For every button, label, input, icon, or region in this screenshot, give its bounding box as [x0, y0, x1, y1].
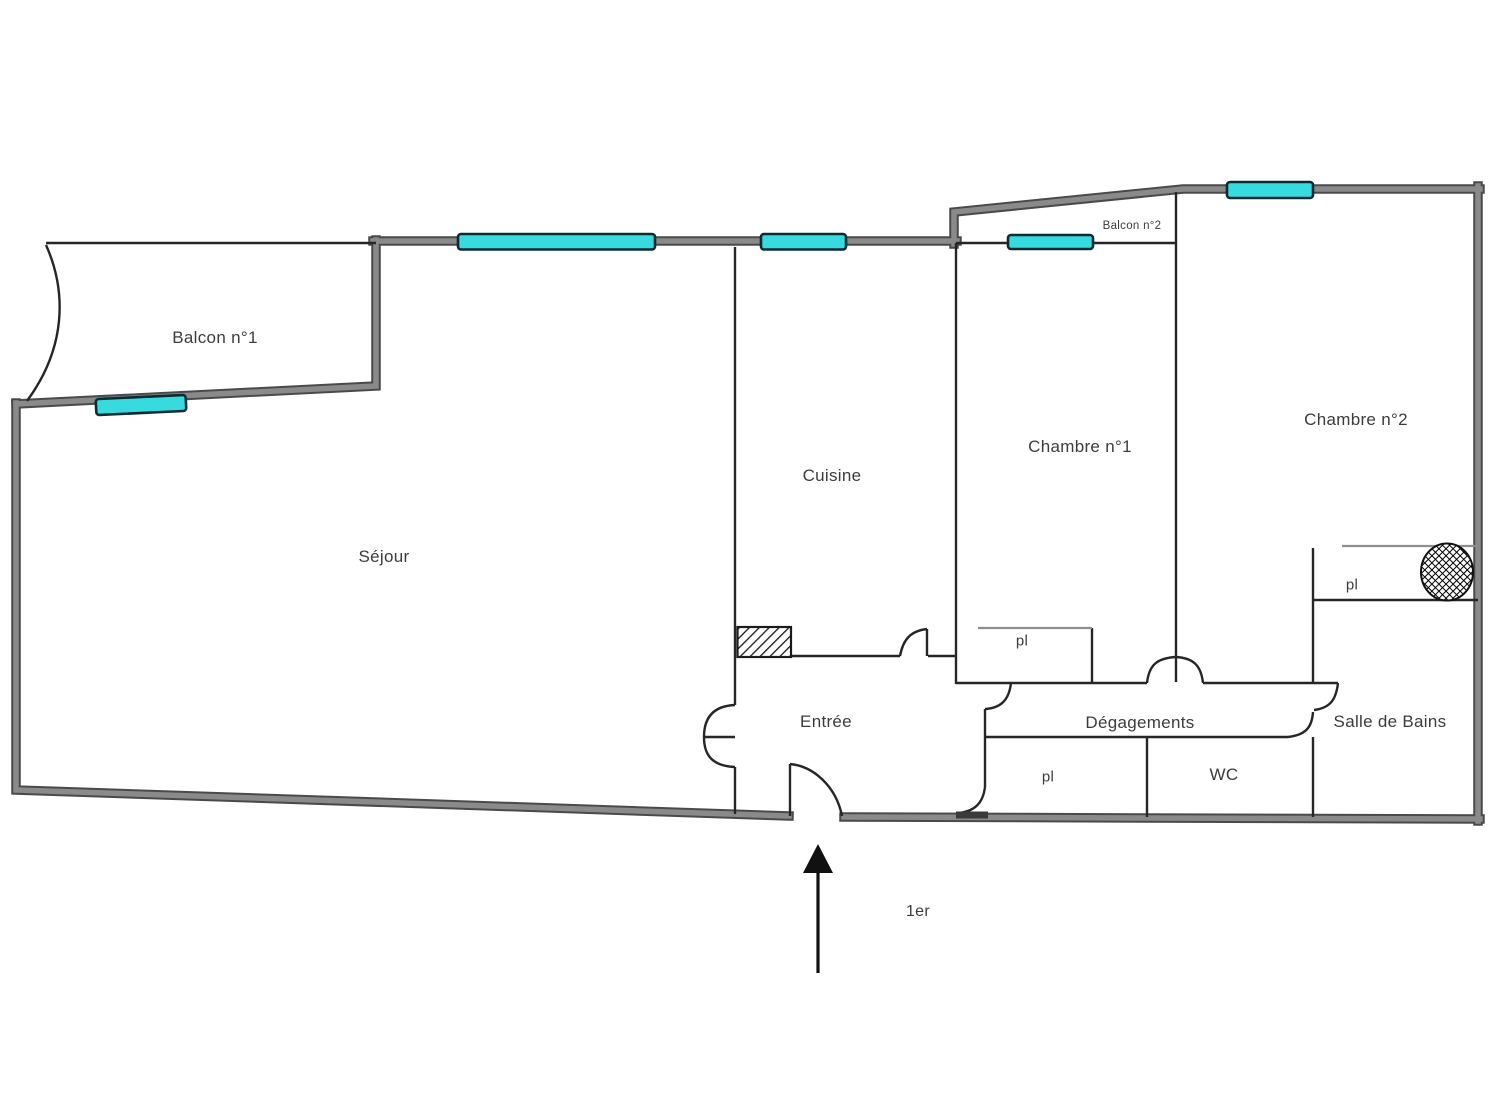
- closet-label-chambre2: pl: [1346, 577, 1358, 594]
- wall-bottom-right-core: [844, 817, 1480, 819]
- room-label-chambre1: Chambre n°1: [1028, 437, 1132, 457]
- room-label-balcon1: Balcon n°1: [172, 328, 257, 348]
- outer-walls-core: [16, 186, 1480, 821]
- wall-sejour-top-slant: [16, 240, 376, 404]
- sdb-door-arc: [1314, 683, 1338, 710]
- chambre1-door-arc: [1147, 657, 1176, 683]
- hatched-duct: [738, 627, 792, 657]
- entrance-door-arc: [790, 764, 842, 816]
- cuisine-door-arc: [900, 629, 927, 656]
- closet-entree-door-arc: [959, 787, 985, 813]
- window-cuisine: [761, 234, 846, 250]
- closet-lines: [978, 546, 1478, 628]
- window-chambre1-balcony: [1008, 235, 1093, 249]
- outer-walls-casing: [16, 186, 1480, 821]
- floor-plan: Balcon n°1 Séjour Cuisine Chambre n°1 Ch…: [0, 0, 1500, 1106]
- wc-door-arc: [1288, 712, 1313, 737]
- room-label-chambre2: Chambre n°2: [1304, 410, 1408, 430]
- windows: [96, 182, 1313, 415]
- hatched-column: [1421, 544, 1473, 601]
- room-label-wc: WC: [1210, 765, 1239, 785]
- entrance-arrow-head: [803, 844, 833, 873]
- interior-walls: [27, 192, 1478, 817]
- room-label-cuisine: Cuisine: [803, 466, 862, 486]
- chambre2-door-arc: [1176, 657, 1203, 683]
- window-chambre2: [1227, 182, 1313, 198]
- window-sejour-balcony: [96, 395, 187, 415]
- room-label-degagements: Dégagements: [1085, 713, 1194, 733]
- entrance-arrow: [803, 844, 833, 973]
- floor-level-label: 1er: [906, 903, 930, 921]
- closet-label-entree: pl: [1042, 769, 1054, 786]
- window-sejour-top: [458, 234, 655, 250]
- floor-plan-drawing: [0, 0, 1500, 1106]
- closet-label-chambre1: pl: [1016, 633, 1028, 650]
- room-label-entree: Entrée: [800, 712, 852, 732]
- swing-door-arc-lower: [704, 737, 735, 767]
- wall-left-and-bottom-left-core: [16, 403, 789, 816]
- room-label-balcon2: Balcon n°2: [1103, 220, 1162, 232]
- entree-corridor-door-arc: [985, 683, 1011, 709]
- room-label-salle-de-bains: Salle de Bains: [1334, 712, 1447, 732]
- wall-sejour-top-slant-core: [16, 240, 376, 404]
- balcony1-door-arc: [27, 245, 60, 401]
- wall-left-and-bottom-left: [16, 403, 789, 816]
- swing-door-arc-upper: [704, 705, 735, 737]
- room-label-sejour: Séjour: [359, 547, 410, 567]
